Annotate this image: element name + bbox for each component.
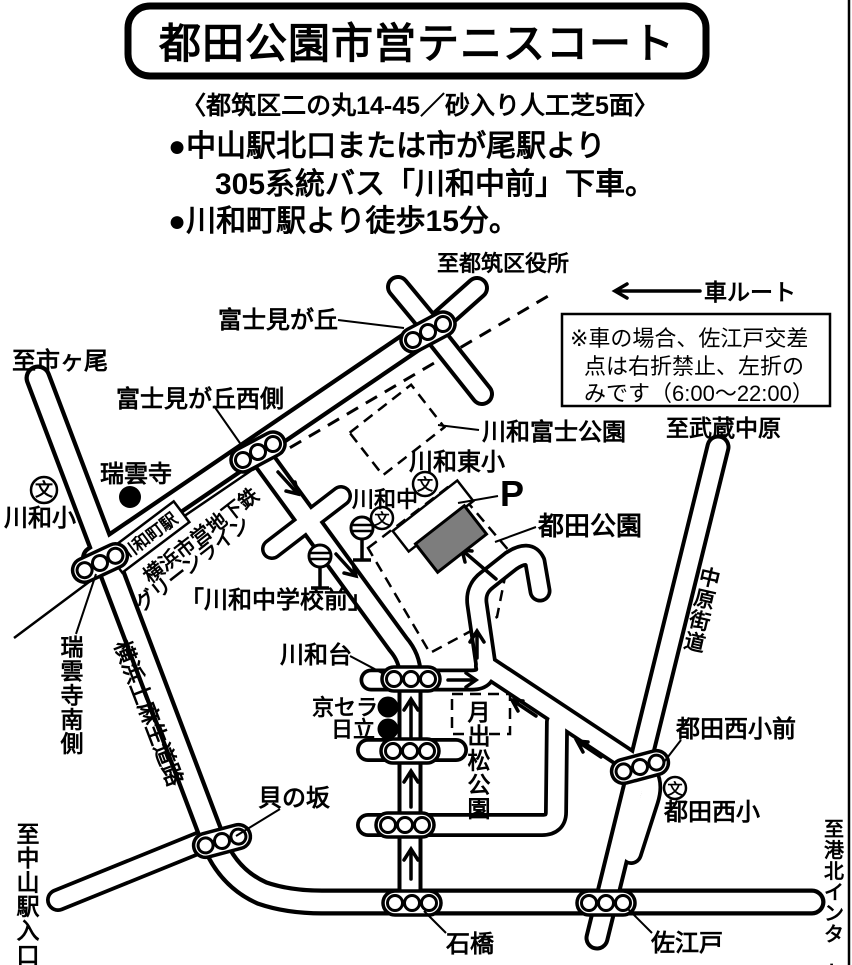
svg-text:文: 文: [374, 510, 390, 528]
bus-stop-kawawadai: [382, 667, 440, 691]
label-kawawa-jhs-mae-stop: 「川和中学校前」: [180, 586, 372, 614]
car-note-line-3: みです（6:00～22:00）: [584, 381, 814, 406]
zuiunji-dot: [119, 486, 141, 508]
address-subtitle: 〈都筑区二の丸14-45／砂入り人工芝5面〉: [181, 91, 659, 120]
label-parking: P: [500, 473, 524, 514]
car-note-line-1: ※車の場合、佐江戸交差: [570, 326, 808, 351]
label-kawawa-jhs: 川和中: [351, 487, 418, 512]
bus-stop-saedo: [577, 891, 635, 915]
label-tsukidematsu-park: 月出松公園: [467, 699, 491, 822]
svg-text:文: 文: [35, 479, 54, 500]
svg-text:文: 文: [667, 780, 683, 798]
school-icon-kawawa-elem: 文: [31, 477, 57, 503]
label-fujimigaoka: 富士見が丘: [218, 306, 338, 334]
label-tsuda-nishi-elem: 都田西小: [663, 799, 760, 826]
label-to-tsuzuki-ward-office: 至都筑区役所: [437, 251, 569, 276]
label-zuiunji: 瑞雲寺: [100, 461, 172, 488]
label-kawawa-higashi-elem: 川和東小: [409, 449, 505, 476]
label-saedo: 佐江戸: [650, 930, 723, 957]
label-kawawadai: 川和台: [280, 641, 352, 669]
access-bullet-2: ●川和町駅より徒歩15分。: [168, 205, 519, 238]
svg-text:文: 文: [417, 475, 434, 494]
label-kawawa-elem: 川和小: [4, 505, 76, 532]
label-hitachi: 日立: [331, 717, 375, 742]
label-zuiunji-south: 瑞雲寺南側: [60, 634, 84, 757]
bus-stop-middle: [381, 739, 439, 763]
label-to-musashi-nakahara: 至武蔵中原: [666, 415, 781, 441]
label-fujimigaoka-west: 富士見が丘西側: [116, 385, 284, 413]
label-tsuda-nishi-elem-mae: 都田西小前: [675, 715, 796, 743]
access-bullet-1b: 305系統バス「川和中前」下車。: [215, 168, 655, 201]
label-to-nakayama-sta-ent: 至中山駅入口: [17, 821, 40, 965]
bus-stop-lower: [376, 813, 434, 837]
car-note-line-2: 点は右折禁止、左折の: [584, 354, 804, 379]
page-title: 都田公園市営テニスコート: [158, 20, 675, 67]
label-kawawa-fuji-park: 川和富士公園: [482, 418, 626, 446]
bus-stop-ishibashi: [383, 891, 441, 915]
access-map-canvas: 川和町駅: [0, 0, 852, 965]
label-to-ichigao: 至市ヶ尾: [12, 347, 108, 375]
school-icon-tsuda-nishi-elem: 文: [664, 777, 686, 799]
access-bullet-1: ●中山駅北口または市が尾駅より: [168, 129, 606, 163]
label-tsuda-park: 都田公園: [537, 511, 642, 541]
kyocera-dot: [378, 697, 399, 718]
access-map-page: 川和町駅: [0, 0, 852, 965]
hitachi-dot: [378, 719, 399, 740]
label-ishibashi: 石橋: [445, 931, 495, 958]
car-route-legend-label: 車ルート: [704, 279, 796, 305]
label-kainosaka: 貝の坂: [258, 785, 331, 812]
